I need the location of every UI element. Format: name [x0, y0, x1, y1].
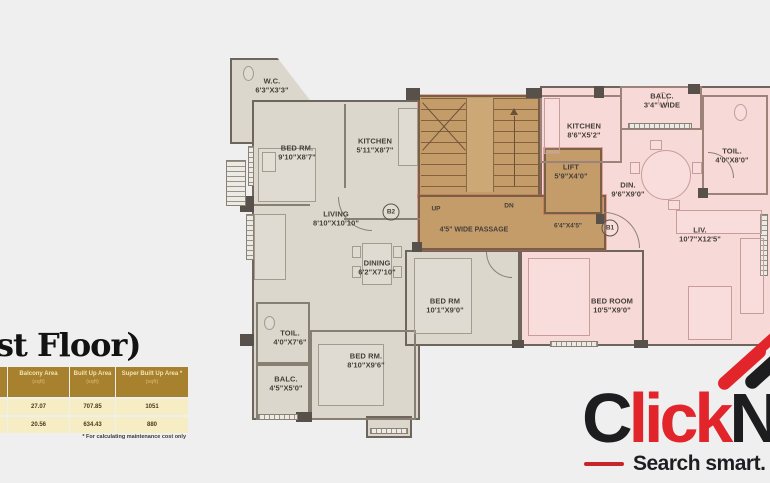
bedrm1-bottom-wall [252, 204, 310, 206]
cell: 27.07 [8, 399, 70, 415]
chair [650, 140, 662, 150]
col-header-clipped [0, 367, 8, 397]
room-label-toil-1: TOIL. 4'0"X7'6" [273, 329, 306, 348]
room-name: KITCHEN [567, 122, 601, 131]
room-dims: 5'11"X8'7" [356, 146, 393, 155]
brand-tagline: Search smart. L [584, 452, 770, 476]
brand-letter-start: C [582, 379, 629, 457]
unit-marker-b2: B2 [383, 204, 400, 221]
col-subtitle: (sqft) [116, 379, 188, 385]
cell [0, 417, 8, 433]
room-label-din: DIN. 9'6"X9'0" [611, 181, 644, 200]
room-name: BED RM [426, 297, 464, 306]
room-dims: 4'0"X7'6" [273, 338, 306, 347]
wall-column [526, 88, 542, 98]
brand-letters-mid: lick [629, 379, 730, 457]
table-row: 27.07 707.85 1051 [0, 399, 190, 415]
table-footnote: * For calculating maintenance cost only [30, 434, 186, 440]
col-title: Balcony Area [19, 371, 57, 377]
kitchen1-left-wall [344, 104, 346, 188]
room-name: KITCHEN [356, 137, 393, 146]
stair-arrow-head [510, 108, 518, 115]
cell: 880 [116, 417, 188, 433]
room-label-lift: LIFT 5'9"X4'0" [554, 163, 587, 182]
kitchen-counter [398, 108, 418, 166]
wall-column [240, 334, 254, 346]
window [246, 214, 254, 260]
unit-marker-b1: B1 [602, 220, 619, 237]
room-dims: 8'10"X9'6" [347, 361, 385, 370]
col-header-super-built-up-area: Super Built Up Area * (sqft) [116, 367, 188, 397]
room-name: DINING [358, 259, 396, 268]
area-table-header: Balcony Area (sqft) Built Up Area (sqft)… [0, 367, 190, 397]
room-name: BED ROOM [591, 297, 633, 306]
wall-column [406, 88, 420, 100]
stair-landing [466, 98, 494, 192]
tagline-text: Search smart. [633, 452, 765, 476]
brand-letter-end: N [729, 379, 770, 457]
chair [630, 162, 640, 174]
wall-column [634, 340, 648, 348]
cell [0, 399, 8, 415]
lobby-dims-label: 6'4"X4'5" [554, 223, 582, 230]
wall-column [698, 188, 708, 198]
floor-plan-page: W.C. 6'3"X3'3" BED RM. 9'10"X8'7" KITCHE… [0, 0, 770, 483]
wall-column [512, 340, 524, 348]
room-dims: 4'5"X5'0" [269, 384, 302, 393]
window [628, 123, 692, 129]
wall-column [412, 242, 422, 252]
room-label-kitchen-2: KITCHEN 8'6"X5'2" [567, 122, 601, 141]
room-label-bed-room-4: BED ROOM 10'5"X9'0" [591, 297, 633, 316]
bed [528, 258, 590, 336]
wc-fixture [243, 66, 254, 81]
room-label-balc-1: BALC. 4'5"X5'0" [269, 375, 302, 394]
col-title: Super Built Up Area * [122, 371, 182, 377]
col-subtitle: (sqft) [8, 379, 69, 385]
chair [692, 162, 702, 174]
room-name: W.C. [255, 77, 288, 86]
room-dims: 8'10"X10'10" [313, 219, 359, 228]
col-title: Built Up Area [74, 371, 112, 377]
room-label-bed-rm-1: BED RM. 9'10"X8'7" [278, 144, 316, 163]
passage-label: 4'5" WIDE PASSAGE [440, 227, 509, 234]
table-row: 20.56 634.43 880 [0, 417, 190, 433]
room-label-balc-2: BALC. 3'4" WIDE [644, 92, 680, 111]
room-dims: 10'5"X9'0" [591, 306, 633, 315]
stairs-dn-label: DN [504, 203, 513, 210]
room-name: BED RM. [278, 144, 316, 153]
room-label-living: LIVING 8'10"X10'10" [313, 210, 359, 229]
chair [668, 200, 680, 210]
room-name: BALC. [644, 92, 680, 101]
room-label-bed-rm-2: BED RM. 8'10"X9'6" [347, 352, 385, 371]
wall-column [594, 86, 604, 98]
round-dining-table [641, 150, 691, 200]
room-name: LIFT [554, 163, 587, 172]
room-name: BED RM. [347, 352, 385, 361]
col-header-built-up-area: Built Up Area (sqft) [70, 367, 116, 397]
window [550, 341, 598, 347]
cell: 1051 [116, 399, 188, 415]
brand-wordmark: ClickN [582, 383, 770, 453]
room-name: TOIL. [273, 329, 306, 338]
center-table [688, 286, 732, 340]
room-label-bed-rm-3: BED RM 10'1"X9'0" [426, 297, 464, 316]
cell: 707.85 [70, 399, 116, 415]
sofa [740, 238, 764, 314]
window [258, 414, 298, 420]
stairs-up-label: UP [431, 206, 440, 213]
room-label-wc: W.C. 6'3"X3'3" [255, 77, 288, 96]
cell: 20.56 [8, 417, 70, 433]
room-name: TOIL. [715, 147, 748, 156]
wall-column [688, 84, 700, 94]
pillow [262, 152, 276, 172]
room-name: DIN. [611, 181, 644, 190]
room-dims: 9'6"X9'0" [611, 190, 644, 199]
floor-title: st Floor) [0, 326, 141, 364]
cell: 634.43 [70, 417, 116, 433]
room-label-kitchen-1: KITCHEN 5'11"X8'7" [356, 137, 393, 156]
room-name: LIVING [313, 210, 359, 219]
col-header-balcony-area: Balcony Area (sqft) [8, 367, 70, 397]
room-name: LIV. [679, 226, 721, 235]
room-dims: 6'2"X7'10" [358, 268, 396, 277]
room-dims: 3'4" WIDE [644, 101, 680, 110]
chair [352, 246, 361, 258]
kitchen-counter [544, 98, 560, 154]
room-label-liv: LIV. 10'7"X12'5" [679, 226, 721, 245]
room-dims: 6'3"X3'3" [255, 86, 288, 95]
col-subtitle: (sqft) [70, 379, 115, 385]
room-dims: 4'0"X8'0" [715, 156, 748, 165]
room-dims: 10'1"X9'0" [426, 306, 464, 315]
room-dims: 9'10"X8'7" [278, 153, 316, 162]
window [226, 160, 246, 206]
wall-column [296, 412, 312, 422]
room-dims: 10'7"X12'5" [679, 235, 721, 244]
window [370, 428, 408, 434]
sofa [254, 214, 286, 280]
area-table: Balcony Area (sqft) Built Up Area (sqft)… [0, 367, 190, 433]
room-label-toil-2: TOIL. 4'0"X8'0" [715, 147, 748, 166]
window [248, 146, 254, 186]
tagline-dash-icon [584, 462, 624, 466]
room-dims: 5'9"X4'0" [554, 172, 587, 181]
chair [393, 246, 402, 258]
room-label-dining: DINING 6'2"X7'10" [358, 259, 396, 278]
toilet-fixture [734, 104, 747, 121]
room-dims: 8'6"X5'2" [567, 131, 601, 140]
room-name: BALC. [269, 375, 302, 384]
stair-direction-arrow [514, 116, 515, 186]
